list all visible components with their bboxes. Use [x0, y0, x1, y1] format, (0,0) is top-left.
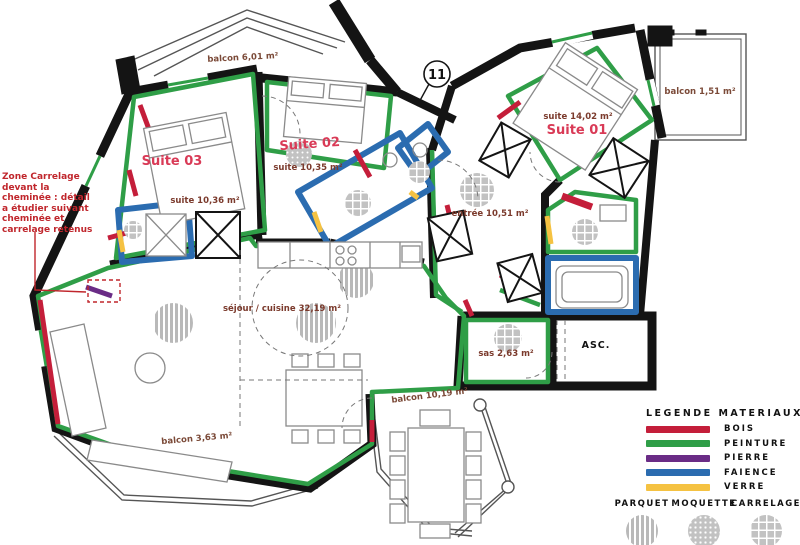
legend-floor-carrelage: CARRELAGE — [736, 499, 796, 545]
sejour-area: séjour / cuisine 32,19 m² — [223, 303, 341, 314]
pierre-swatch — [646, 455, 710, 462]
legend-material-faience: FAIENCE — [646, 468, 796, 478]
legend-material-bois: BOIS — [646, 424, 796, 434]
parquet-label: PARQUET — [615, 499, 670, 509]
suite02-area: suite 10,35 m² — [273, 163, 343, 173]
legend-floor-moquette: MOQUETTE — [674, 499, 734, 545]
legend-material-verre: VERRE — [646, 482, 796, 492]
verre-swatch — [646, 484, 710, 491]
moquette-label: MOQUETTE — [671, 499, 736, 509]
entree-area: entrée 10,51 m² — [452, 208, 529, 219]
balcon-ne-label: balcon 1,51 m² — [664, 87, 735, 97]
verre-label: VERRE — [724, 482, 765, 492]
pierre-label: PIERRE — [724, 453, 770, 463]
legend-floor-materials: PARQUET MOQUETTE CARRELAGE — [612, 499, 796, 545]
suite01-title: Suite 01 — [547, 123, 608, 138]
unit-number: 11 — [428, 68, 446, 83]
legend-title: LEGENDE MATERIAUX — [646, 408, 796, 419]
suite01-area: suite 14,02 m² — [543, 112, 613, 122]
faience-swatch — [646, 469, 710, 476]
carrelage-label: CARRELAGE — [731, 499, 800, 509]
bois-label: BOIS — [724, 424, 755, 434]
legend-floor-parquet: PARQUET — [612, 499, 672, 545]
carrelage-swatch — [750, 515, 782, 545]
annotation-note: Zone Carrelage devant la cheminée : déta… — [2, 172, 98, 236]
moquette-swatch — [688, 515, 720, 545]
legend-material-pierre: PIERRE — [646, 453, 796, 463]
balcon-nw-label: balcon 6,01 m² — [207, 51, 279, 65]
legend: LEGENDE MATERIAUX BOIS PEINTURE PIERRE F… — [612, 408, 796, 545]
suite03-title: Suite 03 — [142, 154, 203, 169]
suite03-area: suite 10,36 m² — [170, 196, 240, 206]
balcon-sw-label: balcon 3,63 m² — [161, 431, 233, 447]
floor-plan-page: 11 Suite 03 suite 10,36 m² Suite 02 suit… — [0, 0, 800, 545]
parquet-swatch — [626, 515, 658, 545]
peinture-label: PEINTURE — [724, 439, 787, 449]
peinture-swatch — [646, 440, 710, 447]
bois-swatch — [646, 426, 710, 433]
faience-label: FAIENCE — [724, 468, 778, 478]
legend-material-peinture: PEINTURE — [646, 439, 796, 449]
suite02-title: Suite 02 — [279, 135, 341, 154]
finish-pierre-lines — [86, 287, 112, 296]
sas-area: sas 2,63 m² — [478, 349, 534, 359]
asc-label: ASC. — [582, 340, 611, 351]
